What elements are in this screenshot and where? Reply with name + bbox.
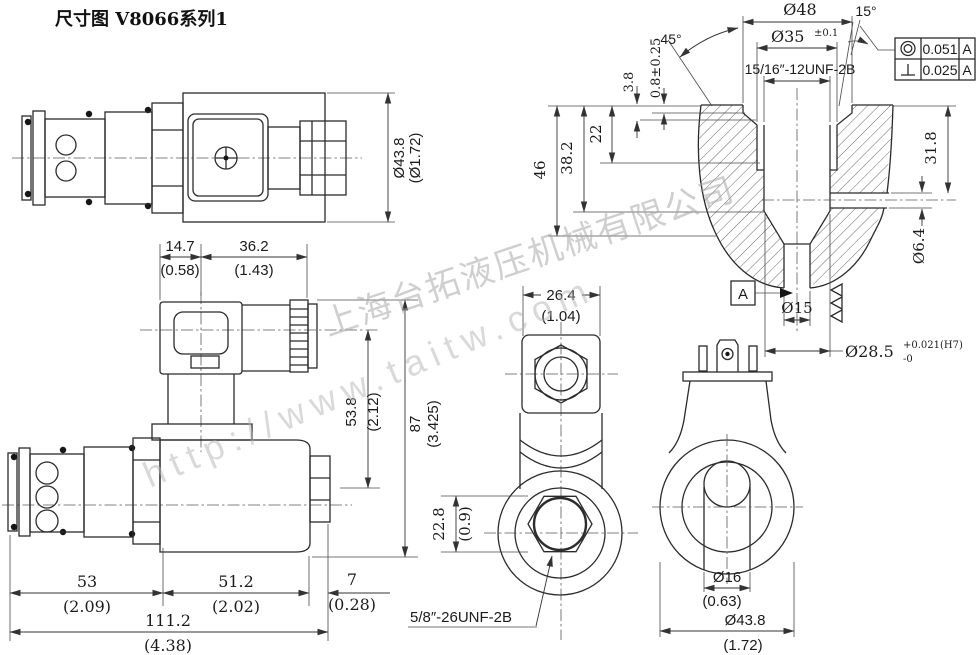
dim-thread-major-tol: ±0.1 — [814, 28, 838, 39]
dim-port-dia: Ø6.4 — [910, 228, 928, 264]
dim-coil-dia-inch: (Ø1.72) — [407, 133, 424, 184]
cross-hole — [56, 135, 76, 155]
dim-connector-width-inch: (0.58) — [160, 262, 199, 279]
dim-total-length-inch: (4.38) — [144, 636, 192, 655]
tolerance-datum-2: A — [962, 62, 972, 78]
dim-nut-length: 7 — [347, 570, 357, 589]
cavity-section-view: Ø48 Ø35 ±0.1 15/16″-12UNF-2B 45° 15° 3.8… — [531, 0, 963, 365]
dim-total-length: 111.2 — [145, 611, 191, 630]
cross-hole — [56, 161, 76, 181]
o-ring-dot — [25, 191, 31, 197]
cartridge — [8, 438, 160, 544]
dim-taper-angle: 15° — [855, 3, 876, 19]
solenoid-body — [183, 93, 325, 222]
coil-end-view: Ø16 (0.63) Ø43.8 (1.72) — [652, 340, 803, 654]
dim-pilot-dia: Ø15 — [781, 299, 812, 317]
dim-depth-spotface: 0.8±0.25 — [649, 38, 664, 99]
dim-coil-length-inch: (2.02) — [212, 597, 260, 616]
dim-cartridge-length: 53 — [77, 572, 97, 591]
concentricity-icon — [901, 42, 915, 56]
threaded-bore — [534, 498, 586, 550]
side-view: Ø43.8 (Ø1.72) — [12, 93, 424, 222]
dim-hex-af: 22.8 — [430, 507, 448, 540]
dim-spotface-dia: Ø48 — [783, 0, 816, 19]
perpendicularity-icon — [901, 64, 915, 75]
coil-end-nut — [310, 456, 330, 522]
dim-bore-tol-lower: -0 — [903, 354, 913, 365]
dim-cartridge-length-inch: (2.09) — [63, 597, 111, 616]
connector-pin — [699, 346, 707, 371]
dim-tube-dia-inch: (0.63) — [702, 593, 741, 610]
dim-coil-face-dia: Ø43.8 — [725, 612, 766, 629]
dimension-drawing-page: 尺寸图 V8066系列1 Ø43 — [0, 0, 980, 655]
phillips-screw-icon — [215, 147, 237, 169]
tolerance-value-1: 0.051 — [922, 41, 957, 57]
dim-coil-top-width: 36.2 — [239, 238, 268, 255]
dim-coil-top-width-inch: (1.43) — [234, 262, 273, 279]
dim-tube-dia: Ø16 — [713, 569, 741, 586]
hex-nut-face — [528, 496, 592, 551]
dim-thread-major-dia: Ø35 — [771, 27, 804, 46]
cross-hole — [36, 462, 58, 484]
tolerance-frame: 0.051 A 0.025 A — [860, 26, 975, 80]
dim-total-height: 87 — [407, 416, 424, 433]
tolerance-value-2: 0.025 — [922, 62, 957, 78]
connector-pin — [749, 346, 757, 371]
o-ring-dot — [86, 199, 92, 205]
dim-nut-length-inch: (0.28) — [328, 595, 376, 614]
dim-coil-dia: Ø43.8 — [391, 138, 408, 179]
dim-cavity-thread-spec: 15/16″-12UNF-2B — [745, 61, 856, 77]
tolerance-datum-1: A — [962, 41, 972, 57]
knurled-nut — [242, 300, 317, 372]
dim-depth-chamfer: 3.8 — [622, 72, 637, 93]
dim-coil-face-dia-inch: (1.72) — [723, 637, 762, 654]
dim-bore-tol-upper: +0.021(H7) — [903, 340, 963, 351]
page-title: 尺寸图 V8066系列1 — [55, 8, 228, 30]
dim-depth-thread: 22 — [587, 124, 605, 143]
o-ring-dot — [86, 111, 92, 117]
dim-thread-spec: 5/8″-26UNF-2B — [410, 609, 512, 626]
cross-hole — [36, 510, 58, 532]
thread-symbol-icon — [831, 284, 842, 322]
o-ring-dot — [25, 119, 31, 125]
dim-bore-dia: Ø28.5 — [845, 342, 894, 361]
dim-connector-width: 14.7 — [165, 238, 194, 255]
dim-depth-step: 38.2 — [558, 141, 576, 174]
datum-label: A — [738, 286, 748, 303]
dim-depth-total: 46 — [531, 160, 549, 179]
dim-total-height-inch: (3.425) — [425, 400, 442, 448]
dim-depth-port: 31.8 — [922, 131, 940, 164]
dim-hex-af-inch: (0.9) — [456, 506, 474, 542]
dim-coil-length: 51.2 — [218, 572, 254, 591]
